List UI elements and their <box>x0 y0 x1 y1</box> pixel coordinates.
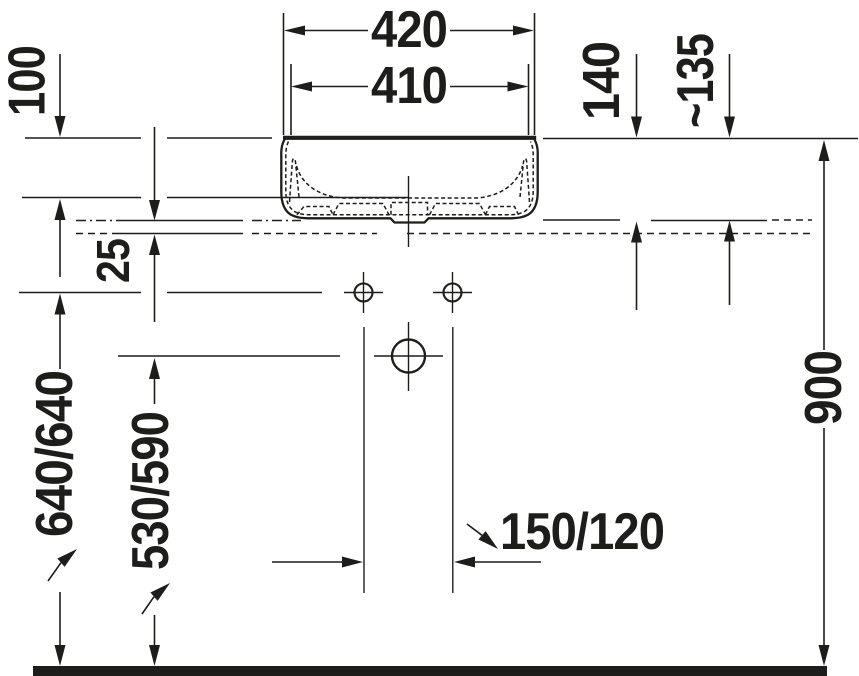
arrowhead-diagonal <box>478 531 498 549</box>
arrowhead-down <box>819 645 830 666</box>
arrowhead-up <box>55 199 66 220</box>
basin-wall-cavity-right <box>520 159 530 202</box>
dim-label-rim-height: 640/640 <box>26 371 84 537</box>
arrowhead-left <box>291 82 312 92</box>
leader-line <box>48 563 61 581</box>
leader-line <box>467 524 482 535</box>
dim-100: 100 <box>0 46 408 277</box>
dim-900: 900 <box>795 140 853 666</box>
arrowhead-down <box>631 117 642 138</box>
dim-label-height-above-counter-approx: ~135 <box>667 34 725 128</box>
countertop-lines <box>76 220 812 234</box>
arrowhead-up <box>631 222 642 243</box>
dim-410: 410 <box>291 57 529 135</box>
dim-530-590: 530/590 <box>122 358 180 666</box>
dim-label-outlet-height: 530/590 <box>122 412 180 570</box>
basin-foot-detail <box>430 204 486 215</box>
basin-bowl-bottom <box>297 166 523 198</box>
arrowhead-up <box>819 140 830 161</box>
drawing-sheet: 420 410 100 25 <box>0 0 859 676</box>
dim-label-inner-width: 410 <box>371 57 447 115</box>
washbasin-dimension-drawing: 420 410 100 25 <box>0 0 859 676</box>
basin-outer-profile <box>281 140 538 223</box>
basin-foot-detail <box>486 207 519 215</box>
floor-line <box>33 666 827 676</box>
dim-label-counter-height: 900 <box>795 351 853 425</box>
dim-label-height-above-counter: 140 <box>573 42 631 120</box>
dim-label-bowl-depth: 100 <box>0 46 57 116</box>
basin-wall-cavity-left <box>290 159 300 202</box>
arrowhead-down <box>149 200 160 221</box>
washbasin <box>281 138 538 247</box>
dim-640-640: 640/640 <box>26 294 84 667</box>
basin-drain-recess <box>391 203 428 215</box>
dim-135: ~135 <box>667 34 735 305</box>
arrowhead-left <box>454 557 475 568</box>
arrowhead-left <box>284 26 305 36</box>
arrowhead-up <box>724 221 735 242</box>
arrowhead-up <box>149 235 160 256</box>
arrowhead-up <box>149 358 160 379</box>
arrowhead-down <box>149 645 160 666</box>
basin-foot-detail <box>333 204 389 215</box>
basin-inner-contour <box>286 142 533 215</box>
arrowhead-right <box>342 557 363 568</box>
arrowhead-down <box>55 645 66 666</box>
dim-label-tap-distance: 150/120 <box>500 503 664 561</box>
arrowhead-right <box>508 82 529 92</box>
arrowhead-down <box>55 116 66 137</box>
dim-140: 140 <box>573 42 642 310</box>
arrowhead-up <box>55 294 66 315</box>
dim-label-counter-offset: 25 <box>87 239 139 283</box>
dim-label-outer-width: 420 <box>371 1 447 59</box>
drain-outlet <box>118 322 443 391</box>
arrowhead-right <box>513 26 534 36</box>
tap-holes <box>19 272 472 593</box>
dim-150-120: 150/120 <box>272 503 664 568</box>
leader-line <box>142 597 154 614</box>
arrowhead-down <box>724 117 735 138</box>
